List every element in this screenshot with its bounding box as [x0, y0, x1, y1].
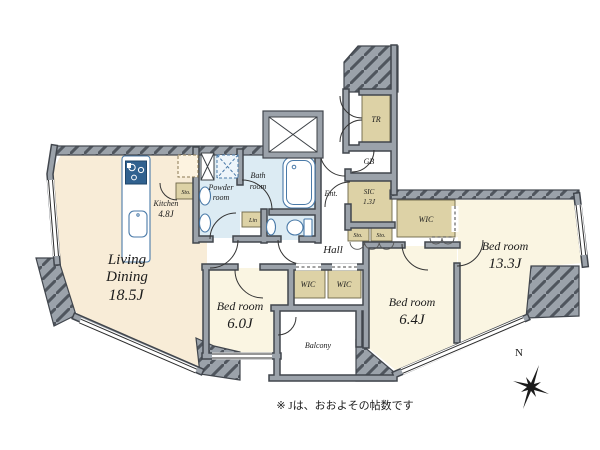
gb-label: GB: [364, 157, 375, 166]
sic-size: 1.3J: [363, 198, 376, 206]
toilet-tank: [304, 219, 312, 236]
living-dining-label-2: Dining: [105, 269, 148, 285]
bedroom-large-label: Bed room: [482, 239, 529, 253]
compass: N: [513, 347, 549, 409]
floor-plan: Living Dining 18.5J Kitchen 4.8J Bed roo…: [0, 0, 600, 450]
entrance-label: Ent.: [323, 189, 337, 198]
bedroom-large-top-wall: [390, 190, 579, 199]
wic-b-label: WIC: [337, 280, 352, 289]
sto-kitchen-label: Sto.: [181, 190, 190, 196]
bathtub: [283, 157, 315, 208]
hall-label: Hall: [322, 244, 343, 256]
linen-label: Lin: [248, 218, 257, 224]
kitchen-sink: [129, 211, 147, 237]
wic-large-label: WIC: [419, 215, 434, 224]
bedroom-small-size: 6.0J: [227, 316, 254, 332]
bath-label-1: Bath: [250, 171, 265, 180]
wic-a-label: WIC: [301, 280, 316, 289]
corner-block-right: [526, 266, 579, 318]
north-label: N: [515, 347, 523, 359]
corridor-block: [344, 46, 398, 92]
note-text: ※ Jは、おおよその帖数です: [276, 399, 413, 412]
bath-label-2: room: [250, 182, 267, 191]
powder-label-1: Powder: [208, 183, 235, 192]
bedroom-mid-label: Bed room: [389, 295, 436, 309]
sto-b-label: Sto.: [376, 233, 385, 239]
floor-plan-svg: Living Dining 18.5J Kitchen 4.8J Bed roo…: [0, 0, 600, 450]
bedroom-small-label: Bed room: [217, 299, 264, 313]
sic-label: SIC: [364, 188, 375, 196]
kitchen-label: Kitchen: [153, 199, 179, 208]
living-dining-label-1: Living: [107, 252, 147, 268]
bedroom-mid-size: 6.4J: [399, 312, 426, 328]
powder-label-2: room: [213, 193, 230, 202]
refrigerator-space: [178, 155, 198, 177]
toilet-door-arc: [278, 240, 302, 264]
sto-a-label: Sto.: [353, 233, 362, 239]
trunk-label: TR: [371, 115, 380, 124]
balcony-label: Balcony: [305, 341, 332, 350]
bedroom-large-size: 13.3J: [489, 256, 523, 272]
toilet-bowl: [287, 220, 303, 235]
toilet-basin: [267, 219, 276, 235]
front-door-arc: [320, 151, 345, 176]
powder-basin-2: [200, 214, 211, 232]
kitchen-size: 4.8J: [158, 209, 174, 219]
compass-rose: [513, 365, 549, 409]
living-dining-size: 18.5J: [108, 287, 144, 304]
